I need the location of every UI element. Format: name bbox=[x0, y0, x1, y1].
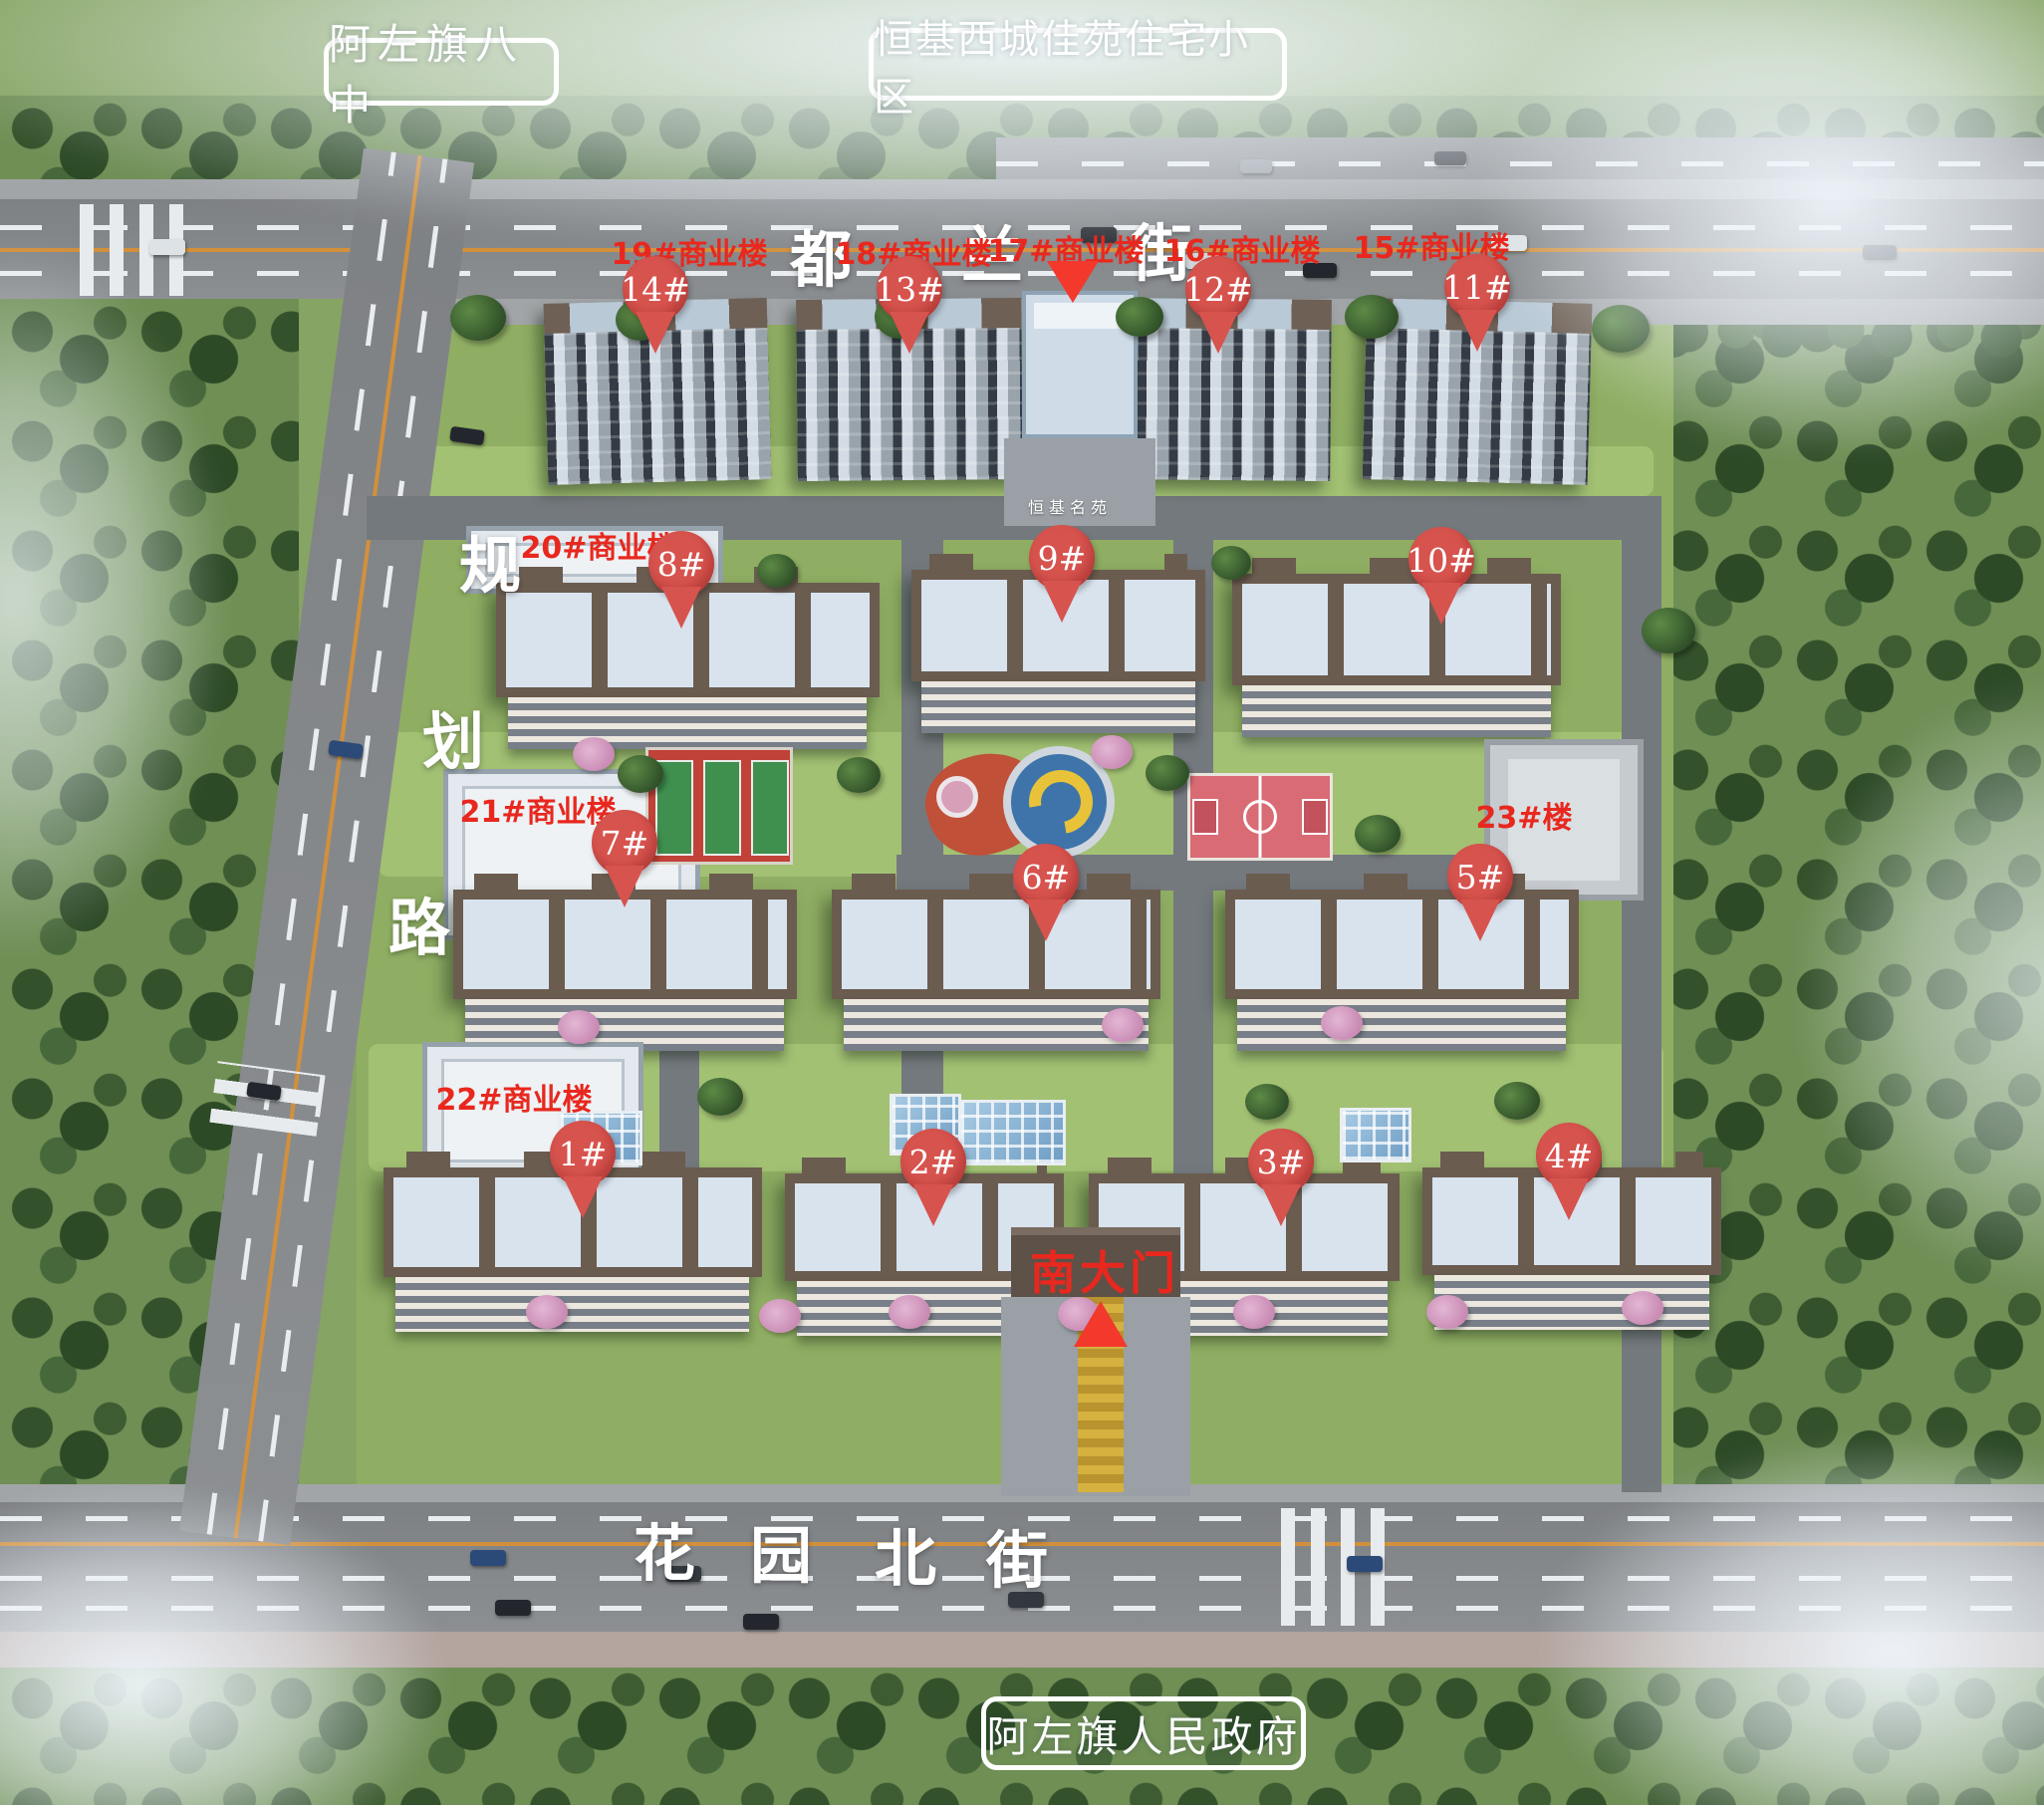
page-title: 恒基西城佳苑住宅小区 bbox=[869, 28, 1287, 101]
tree bbox=[697, 1078, 743, 1116]
pin-label: 3# bbox=[1257, 1143, 1306, 1181]
building-facade bbox=[1434, 1275, 1709, 1330]
street-name-guihua-char: 规 bbox=[459, 515, 521, 605]
pin-building-13[interactable]: 13# bbox=[877, 256, 942, 322]
blossom-tree bbox=[526, 1295, 568, 1329]
tree bbox=[450, 295, 506, 341]
south-gate-label: 南大门 bbox=[1030, 1237, 1179, 1303]
blossom-tree bbox=[573, 737, 615, 771]
blossom-tree bbox=[1321, 1006, 1363, 1040]
landmark-school: 阿左旗八中 bbox=[324, 38, 559, 106]
blossom-tree bbox=[759, 1299, 801, 1333]
pin-building-6[interactable]: 6# bbox=[1013, 844, 1079, 909]
pin-label: 14# bbox=[621, 270, 690, 309]
tree bbox=[1211, 546, 1251, 580]
building-slab-5 bbox=[1225, 890, 1579, 999]
street-name-guihua-char: 划 bbox=[422, 691, 484, 781]
pin-label: 7# bbox=[601, 824, 649, 863]
car bbox=[1347, 1556, 1383, 1572]
blossom-tree bbox=[1091, 735, 1133, 769]
tree bbox=[757, 554, 797, 588]
pin-building-14[interactable]: 14# bbox=[623, 256, 688, 322]
blossom-tree bbox=[1102, 1008, 1144, 1042]
commercial-label-16: 16#商业楼 bbox=[1164, 226, 1321, 270]
tree bbox=[1592, 305, 1650, 353]
sidewalk-bottom-south bbox=[0, 1632, 2044, 1668]
pin-label: 8# bbox=[657, 545, 706, 584]
south-gate-marker-icon[interactable] bbox=[1074, 1301, 1128, 1347]
pin-label: 13# bbox=[875, 270, 944, 309]
pin-building-1[interactable]: 1# bbox=[550, 1121, 616, 1186]
pin-building-7[interactable]: 7# bbox=[592, 810, 657, 876]
blossom-tree bbox=[889, 1295, 930, 1329]
pin-building-11[interactable]: 11# bbox=[1444, 254, 1510, 320]
building-facade bbox=[1237, 999, 1566, 1051]
pin-building-4[interactable]: 4# bbox=[1536, 1123, 1602, 1188]
street-name-huayuanbei-char: 街 bbox=[986, 1510, 1048, 1600]
pin-building-12[interactable]: 12# bbox=[1185, 256, 1251, 322]
blossom-tree bbox=[1233, 1295, 1275, 1329]
pin-building-2[interactable]: 2# bbox=[900, 1129, 966, 1194]
pin-label: 1# bbox=[559, 1135, 608, 1173]
car bbox=[495, 1600, 531, 1616]
pin-building-8[interactable]: 8# bbox=[648, 531, 714, 597]
car bbox=[149, 239, 185, 255]
tree bbox=[1494, 1082, 1540, 1120]
car bbox=[1434, 151, 1466, 165]
pin-label: 9# bbox=[1038, 539, 1087, 578]
landmark-government: 阿左旗人民政府 bbox=[981, 1696, 1306, 1770]
commercial-label-21: 21#商业楼 bbox=[460, 787, 617, 831]
tennis-courts bbox=[645, 747, 793, 865]
tree bbox=[618, 755, 663, 793]
entrance-sign: 恒基名苑 bbox=[1028, 494, 1112, 518]
building-slab-6 bbox=[832, 890, 1160, 999]
commercial-label-22: 22#商业楼 bbox=[436, 1075, 593, 1119]
car bbox=[470, 1550, 506, 1566]
street-name-guihua-char: 路 bbox=[388, 878, 450, 967]
pin-building-10[interactable]: 10# bbox=[1408, 527, 1474, 593]
blossom-tree bbox=[1622, 1291, 1663, 1325]
pin-label: 4# bbox=[1545, 1137, 1594, 1175]
blossom-tree bbox=[1426, 1295, 1468, 1329]
building-facade bbox=[508, 697, 867, 749]
tree bbox=[837, 757, 881, 793]
building-slab-10 bbox=[1232, 574, 1561, 685]
tree bbox=[1345, 295, 1399, 339]
pin-building-9[interactable]: 9# bbox=[1029, 525, 1095, 591]
north-gate-marker-icon[interactable] bbox=[1047, 261, 1099, 303]
pin-building-5[interactable]: 5# bbox=[1447, 844, 1513, 909]
car bbox=[743, 1614, 779, 1630]
pin-label: 6# bbox=[1022, 858, 1071, 897]
playground bbox=[926, 742, 1121, 867]
pin-label: 10# bbox=[1406, 541, 1476, 580]
garden-pool-canopy bbox=[958, 1100, 1066, 1165]
pin-label: 2# bbox=[909, 1143, 958, 1181]
tree bbox=[1116, 297, 1163, 337]
basketball-court bbox=[1187, 773, 1333, 861]
pin-label: 5# bbox=[1456, 858, 1505, 897]
car bbox=[1863, 245, 1897, 260]
tree bbox=[1146, 755, 1189, 791]
sidewalk-top-north bbox=[0, 179, 2044, 199]
street-name-huayuanbei-char: 北 bbox=[875, 1508, 936, 1598]
garden-canopy bbox=[1340, 1108, 1411, 1162]
building-facade bbox=[921, 681, 1195, 733]
blossom-tree bbox=[558, 1010, 600, 1044]
tree bbox=[1642, 608, 1695, 653]
tree bbox=[1245, 1084, 1289, 1120]
pin-label: 12# bbox=[1183, 270, 1253, 309]
car bbox=[1240, 159, 1272, 173]
site-plan-scene: 恒基名苑 bbox=[0, 0, 2044, 1805]
street-name-huayuanbei-char: 园 bbox=[750, 1505, 812, 1595]
forest-right bbox=[1656, 299, 2044, 1484]
pin-building-3[interactable]: 3# bbox=[1248, 1129, 1314, 1194]
building-facade bbox=[395, 1277, 749, 1332]
street-name-huayuanbei-char: 花 bbox=[634, 1503, 695, 1593]
tree bbox=[1355, 815, 1401, 853]
pin-label: 11# bbox=[1442, 268, 1512, 307]
commercial-label-23: 23#楼 bbox=[1476, 793, 1573, 837]
building-facade bbox=[1242, 685, 1551, 737]
